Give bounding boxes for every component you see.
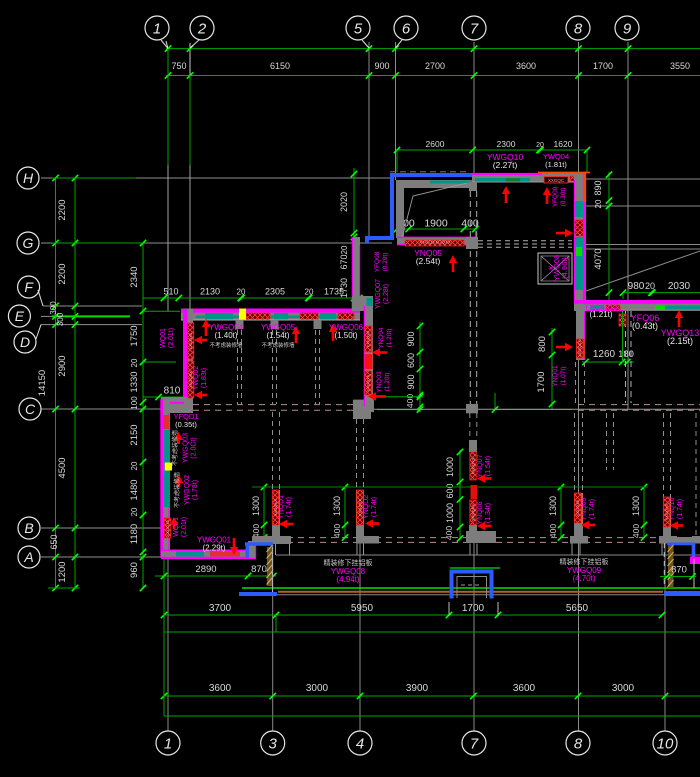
svg-text:400: 400	[332, 524, 342, 538]
svg-text:(1.83t): (1.83t)	[201, 368, 208, 388]
svg-text:A: A	[23, 549, 33, 565]
svg-text:YWGQ07: YWGQ07	[375, 279, 382, 309]
svg-text:(2.01t): (2.01t)	[181, 517, 188, 537]
svg-text:300: 300	[56, 312, 65, 326]
svg-text:870: 870	[671, 565, 687, 576]
svg-text:2305: 2305	[265, 287, 285, 297]
svg-text:10: 10	[657, 735, 674, 752]
svg-text:6150: 6150	[270, 61, 290, 71]
svg-text:(1.74t): (1.74t)	[286, 497, 293, 517]
svg-text:2030: 2030	[668, 281, 691, 292]
svg-text:(4.94t): (4.94t)	[336, 575, 359, 584]
svg-text:1480: 1480	[129, 479, 140, 500]
svg-text:2200: 2200	[57, 199, 68, 220]
svg-text:1180: 1180	[129, 524, 140, 544]
svg-text:3: 3	[269, 735, 278, 752]
svg-text:XXGQXX: XXGQXX	[664, 503, 669, 520]
svg-text:1300: 1300	[332, 496, 342, 516]
svg-text:2130: 2130	[200, 287, 220, 297]
svg-text:(0.30t): (0.30t)	[560, 188, 567, 207]
svg-text:1750: 1750	[129, 325, 140, 346]
svg-text:(1.74t): (1.74t)	[677, 499, 684, 519]
svg-text:(4.96t): (4.96t)	[560, 257, 569, 279]
svg-text:2890: 2890	[195, 564, 216, 575]
svg-text:400: 400	[548, 524, 558, 538]
svg-text:20: 20	[305, 288, 314, 297]
svg-text:3700: 3700	[209, 603, 232, 614]
svg-text:(2.54t): (2.54t)	[416, 256, 441, 266]
svg-text:H: H	[23, 170, 34, 186]
svg-text:YNQ01: YNQ01	[552, 365, 559, 387]
svg-text:900: 900	[406, 331, 416, 346]
svg-text:1620: 1620	[554, 139, 573, 149]
svg-text:8: 8	[574, 735, 583, 752]
svg-text:(1.54t): (1.54t)	[266, 331, 289, 340]
svg-text:750: 750	[171, 61, 186, 71]
svg-text:3000: 3000	[306, 683, 329, 694]
svg-text:YWGQ02: YWGQ02	[184, 475, 191, 505]
svg-text:5950: 5950	[351, 603, 374, 614]
svg-text:XXGQXX: XXGQXX	[273, 499, 278, 516]
svg-text:(1.54t): (1.54t)	[485, 456, 492, 476]
svg-text:(2.15t): (2.15t)	[667, 336, 693, 346]
svg-text:5: 5	[354, 20, 363, 37]
svg-text:2900: 2900	[57, 355, 68, 376]
svg-text:精装修下挂铝板: 精装修下挂铝板	[324, 558, 373, 567]
svg-text:300: 300	[49, 301, 58, 315]
svg-text:600: 600	[445, 483, 455, 498]
svg-text:YNQ09: YNQ09	[581, 497, 588, 520]
svg-text:1260: 1260	[593, 349, 616, 360]
svg-text:YWGQ03: YWGQ03	[183, 433, 190, 463]
svg-text:650: 650	[49, 534, 59, 549]
svg-text:(0.29t): (0.29t)	[382, 253, 389, 272]
svg-text:2150: 2150	[129, 424, 140, 445]
svg-text:1300: 1300	[251, 496, 261, 516]
svg-text:1300: 1300	[548, 496, 558, 516]
svg-text:(1.78t): (1.78t)	[192, 480, 199, 500]
svg-text:20: 20	[130, 461, 139, 470]
svg-text:D: D	[20, 334, 30, 350]
svg-text:20: 20	[340, 245, 349, 254]
svg-text:XXGQXXGQXX: XXGQXXGQXX	[419, 240, 451, 245]
svg-text:900: 900	[406, 374, 416, 389]
svg-text:(2.27t): (2.27t)	[493, 160, 518, 170]
svg-text:XXGQXX: XXGQXX	[577, 340, 582, 357]
svg-text:(1.21t): (1.21t)	[589, 310, 612, 319]
svg-text:YNQ06: YNQ06	[477, 501, 484, 524]
svg-text:1900: 1900	[424, 218, 448, 230]
svg-text:100: 100	[130, 396, 139, 410]
svg-text:XXGQXX: XXGQXX	[365, 330, 370, 347]
svg-text:670: 670	[339, 254, 349, 269]
svg-text:600: 600	[406, 353, 416, 368]
svg-text:510: 510	[163, 287, 178, 297]
svg-text:B: B	[24, 520, 33, 536]
svg-text:6: 6	[402, 20, 411, 37]
svg-text:960: 960	[129, 562, 140, 578]
svg-text:890: 890	[593, 180, 603, 195]
svg-text:1330: 1330	[129, 371, 140, 392]
svg-text:(1.40t): (1.40t)	[214, 331, 237, 340]
svg-text:YFQ09: YFQ09	[552, 186, 559, 207]
svg-text:2300: 2300	[497, 139, 516, 149]
svg-text:800: 800	[537, 336, 548, 352]
svg-text:(2.01t): (2.01t)	[168, 328, 175, 348]
svg-text:(0.35t): (0.35t)	[175, 420, 197, 429]
svg-text:(1.74t): (1.74t)	[371, 497, 378, 517]
svg-text:3000: 3000	[612, 683, 635, 694]
svg-text:2020: 2020	[339, 192, 349, 212]
svg-text:不考虑装修墙: 不考虑装修墙	[209, 341, 243, 349]
svg-text:(2.28t): (2.28t)	[383, 284, 390, 304]
svg-text:4070: 4070	[593, 248, 604, 269]
svg-text:XXGQXX: XXGQXX	[188, 332, 193, 349]
svg-text:XXGQXX: XXGQXX	[365, 374, 370, 391]
svg-text:YNQD2: YNQD2	[363, 495, 370, 519]
svg-text:YFQ08: YFQ08	[374, 251, 381, 272]
svg-text:1730: 1730	[339, 278, 349, 298]
svg-text:2200: 2200	[57, 263, 68, 284]
svg-text:20: 20	[536, 142, 544, 149]
svg-text:7: 7	[470, 20, 479, 37]
svg-text:XXGQXX: XXGQXX	[188, 371, 193, 388]
svg-text:WQ01: WQ01	[160, 328, 167, 348]
svg-text:2: 2	[197, 20, 207, 37]
svg-text:WQ01: WQ01	[173, 517, 180, 537]
svg-text:9: 9	[623, 20, 632, 37]
svg-text:(4.70t): (4.70t)	[572, 574, 595, 583]
svg-text:(1.81t): (1.81t)	[545, 160, 567, 169]
svg-text:400: 400	[405, 394, 415, 408]
svg-text:1700: 1700	[462, 603, 485, 614]
svg-text:1200: 1200	[57, 561, 68, 582]
svg-text:XXGQXX: XXGQXX	[575, 499, 580, 516]
svg-text:3550: 3550	[670, 61, 690, 71]
svg-text:3600: 3600	[209, 683, 232, 694]
svg-text:3600: 3600	[513, 683, 536, 694]
svg-text:20: 20	[130, 358, 139, 367]
svg-text:YNQ04: YNQ04	[378, 327, 385, 349]
svg-text:XXGQXX: XXGQXX	[470, 457, 475, 474]
svg-text:YNQ03: YNQ03	[376, 371, 383, 393]
svg-text:3600: 3600	[516, 61, 536, 71]
svg-text:1000: 1000	[445, 503, 455, 523]
svg-text:不考虑装修墙: 不考虑装修墙	[261, 341, 295, 349]
svg-text:1000: 1000	[445, 457, 455, 477]
svg-text:3900: 3900	[406, 683, 429, 694]
svg-text:不考虑装修墙: 不考虑装修墙	[171, 430, 179, 466]
svg-text:400: 400	[251, 524, 261, 538]
svg-text:(2.29t): (2.29t)	[202, 544, 225, 553]
svg-text:810: 810	[164, 386, 181, 397]
svg-text:XXGQXX: XXGQXX	[357, 499, 362, 516]
svg-text:2700: 2700	[425, 61, 445, 71]
svg-text:精装修下挂铝板: 精装修下挂铝板	[560, 557, 609, 566]
svg-text:(1.20t): (1.20t)	[384, 373, 391, 392]
svg-text:XXGQXX: XXGQXX	[470, 504, 475, 521]
svg-text:4500: 4500	[57, 457, 68, 478]
svg-text:20: 20	[237, 288, 246, 297]
svg-text:E: E	[15, 308, 25, 324]
svg-text:900: 900	[374, 61, 389, 71]
svg-text:20: 20	[645, 281, 655, 291]
svg-text:8: 8	[574, 20, 583, 37]
svg-text:(1.07t): (1.07t)	[560, 367, 567, 386]
svg-text:F: F	[24, 279, 34, 295]
svg-text:不考虑装修墙: 不考虑装修墙	[173, 472, 181, 508]
svg-text:2340: 2340	[129, 266, 140, 287]
svg-text:XXGQC: XXGQC	[548, 178, 565, 183]
svg-text:20: 20	[130, 507, 139, 516]
svg-text:C: C	[25, 401, 36, 417]
svg-text:XXGQXX: XXGQXX	[165, 519, 170, 536]
svg-text:400: 400	[631, 524, 641, 538]
svg-text:(1.20t): (1.20t)	[386, 329, 393, 348]
svg-text:980: 980	[628, 281, 645, 292]
svg-text:G: G	[23, 235, 34, 251]
svg-text:4: 4	[356, 735, 364, 752]
svg-text:(2.0Ct): (2.0Ct)	[191, 437, 198, 458]
svg-text:(1.34t): (1.34t)	[485, 503, 492, 523]
svg-text:14150: 14150	[37, 370, 48, 396]
svg-text:1: 1	[164, 735, 172, 752]
svg-text:(0.43t): (0.43t)	[632, 321, 658, 331]
svg-text:1700: 1700	[536, 371, 547, 392]
svg-text:20: 20	[594, 199, 603, 208]
svg-text:5650: 5650	[566, 603, 589, 614]
svg-text:(1.50t): (1.50t)	[334, 331, 357, 340]
svg-text:7: 7	[470, 735, 479, 752]
svg-text:1700: 1700	[593, 61, 613, 71]
svg-text:870: 870	[251, 564, 267, 575]
svg-text:1: 1	[153, 20, 161, 37]
svg-text:(1.74t): (1.74t)	[589, 499, 596, 519]
svg-text:YNQ07: YNQ07	[477, 454, 484, 477]
svg-text:1300: 1300	[631, 496, 641, 516]
svg-text:2600: 2600	[426, 139, 445, 149]
